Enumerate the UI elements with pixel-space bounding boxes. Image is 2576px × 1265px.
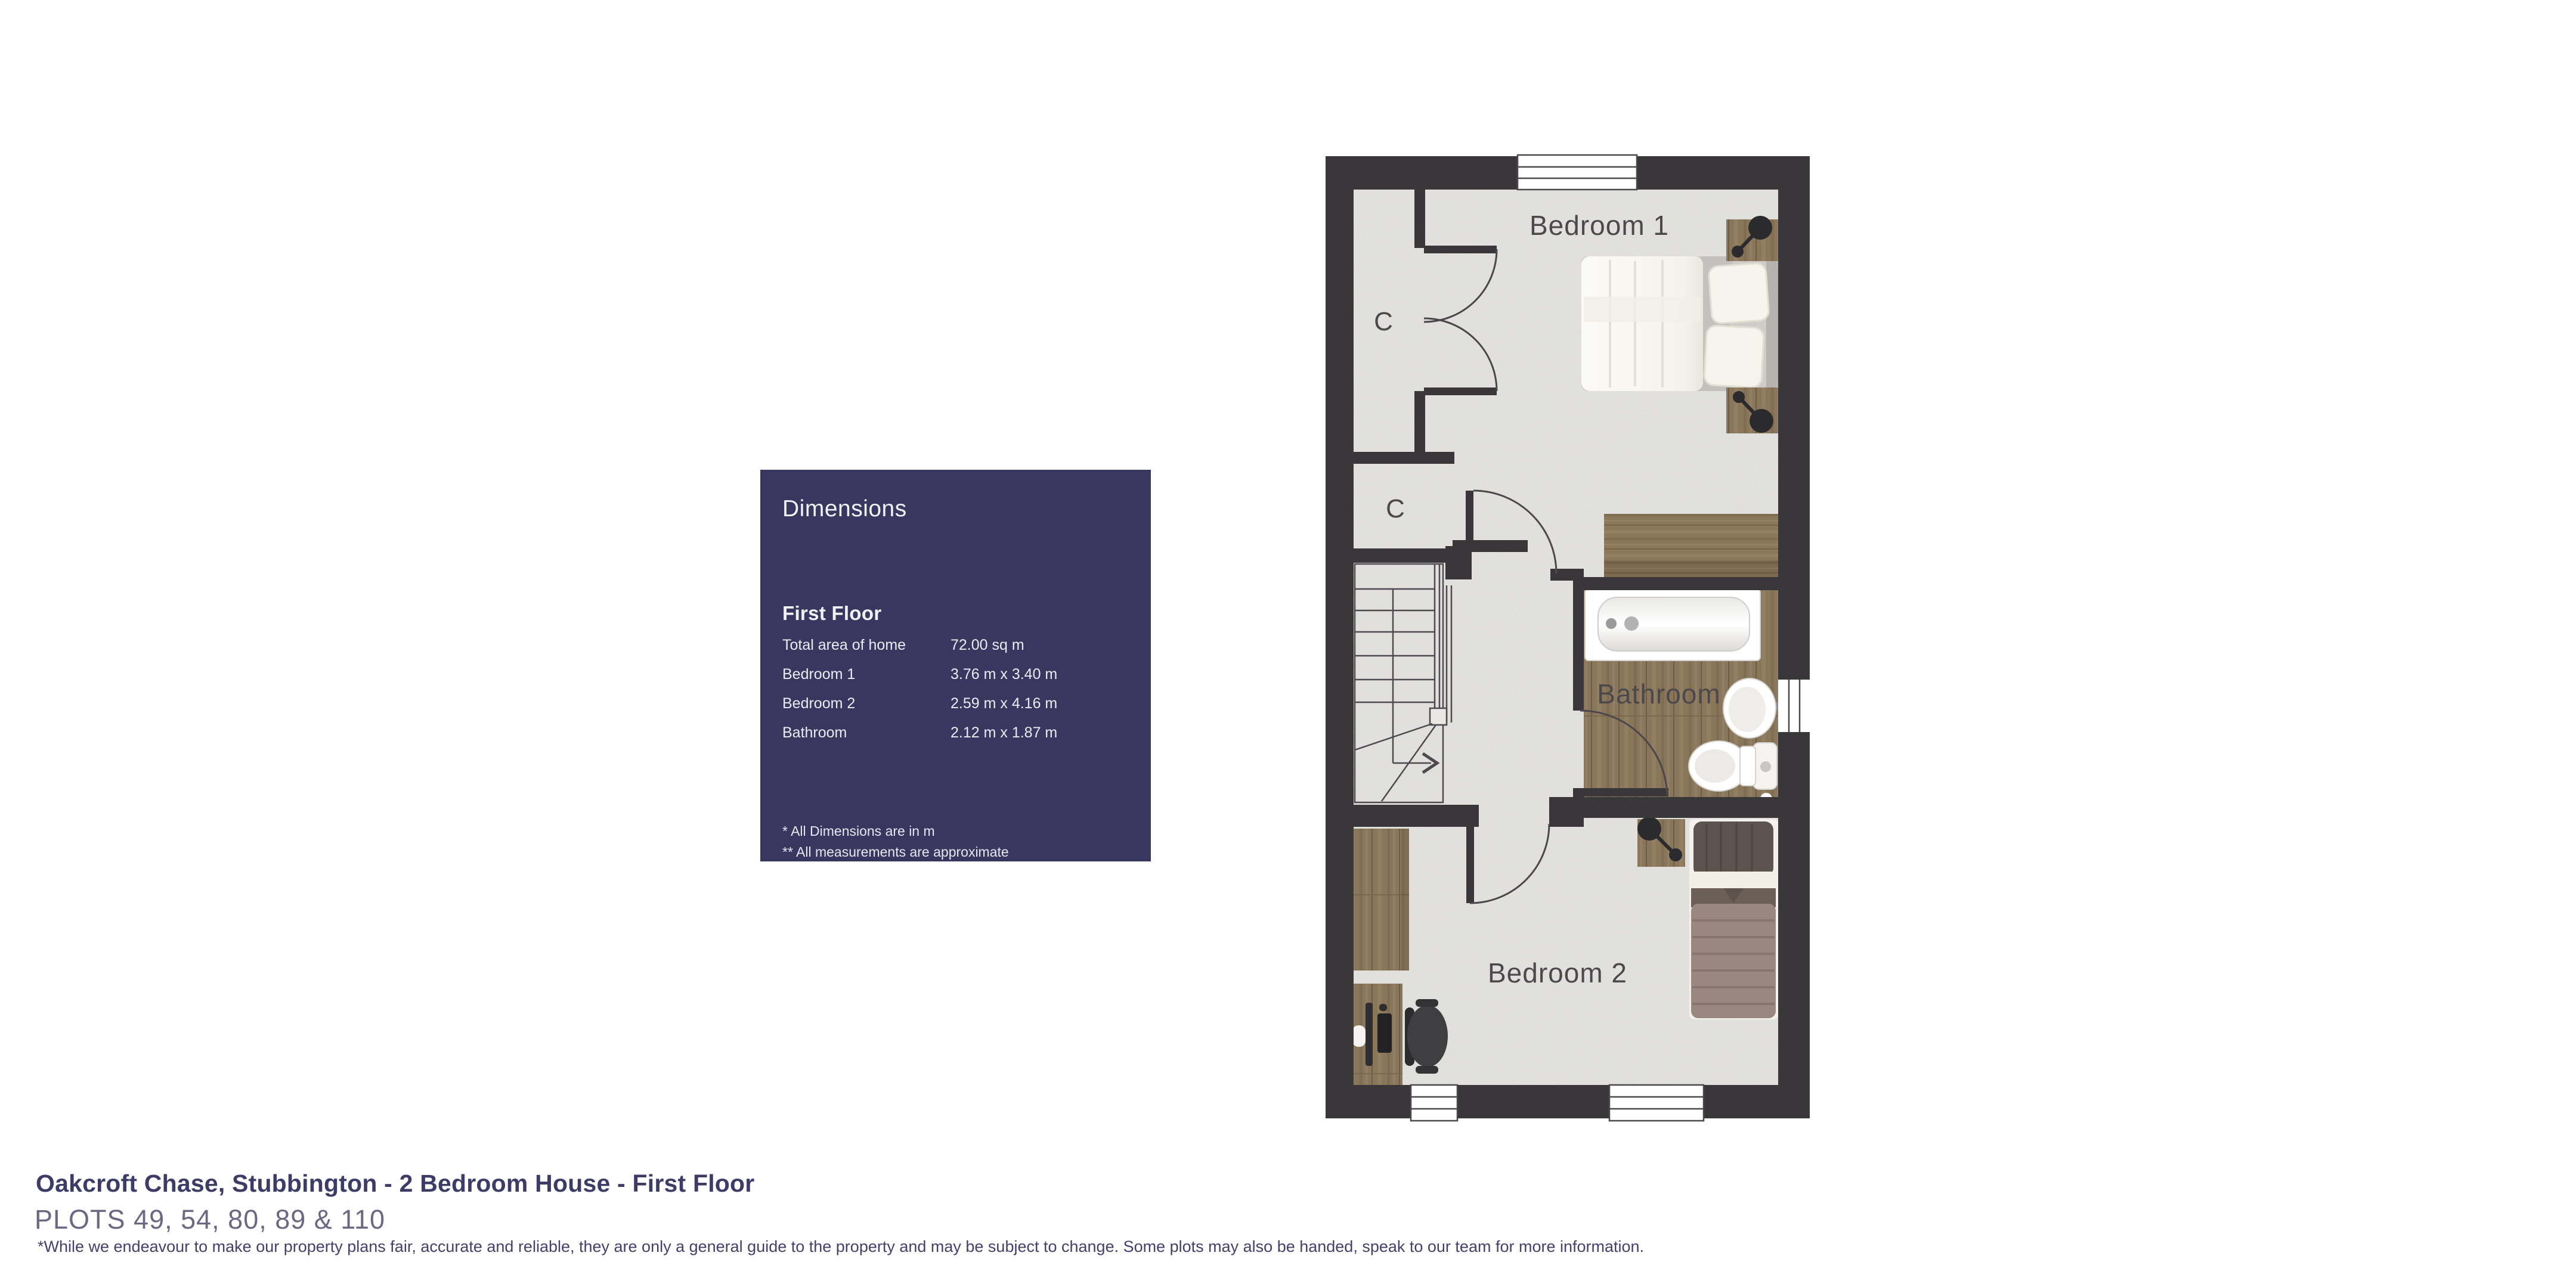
row-value: 2.59 m x 4.16 m [950, 695, 1057, 712]
floorplan-page: Dimensions First Floor Total area of hom… [0, 0, 2576, 1265]
row-value: 3.76 m x 3.40 m [950, 666, 1057, 683]
closet2-label: C [1386, 494, 1405, 523]
table-row: Bedroom 2 2.59 m x 4.16 m [782, 690, 1128, 720]
plots-subtitle: PLOTS 49, 54, 80, 89 & 110 [35, 1204, 385, 1235]
window-top [1518, 155, 1637, 190]
table-row: Bathroom 2.12 m x 1.87 m [782, 720, 1128, 749]
row-label: Bedroom 1 [782, 666, 855, 683]
mouse-icon [1379, 1004, 1387, 1011]
disclaimer-text: *While we endeavour to make our property… [38, 1238, 1644, 1256]
window-bottom-left [1411, 1085, 1457, 1121]
window-bottom-right [1609, 1085, 1704, 1121]
row-label: Total area of home [782, 637, 906, 654]
panel-title: Dimensions [782, 496, 907, 522]
nightstand-bedroom2 [1637, 817, 1685, 867]
single-bed [1689, 819, 1778, 1019]
table-row: Bedroom 1 3.76 m x 3.40 m [782, 661, 1128, 690]
panel-section-first-floor: First Floor [782, 602, 881, 625]
table-row: Total area of home 72.00 sq m [782, 632, 1128, 661]
keyboard-icon [1377, 1013, 1392, 1053]
row-label: Bathroom [782, 724, 847, 742]
nightstand-bottom [1726, 387, 1778, 433]
dimensions-table: Total area of home 72.00 sq m Bedroom 1 … [782, 632, 1128, 749]
double-bed [1581, 256, 1778, 391]
row-value: 72.00 sq m [950, 637, 1024, 654]
footnote-dimensions: * All Dimensions are in m [782, 823, 935, 839]
row-value: 2.12 m x 1.87 m [950, 724, 1057, 742]
window-bathroom [1778, 680, 1810, 732]
closet1-label: C [1374, 307, 1393, 336]
bathroom-label: Bathroom [1597, 678, 1720, 709]
floorplan-drawing: Bedroom 1 C C Bathroom Bedroom 2 [1326, 154, 1810, 1122]
footnote-measurements: ** All measurements are approximate [782, 844, 1009, 860]
page-title: Oakcroft Chase, Stubbington - 2 Bedroom … [36, 1170, 754, 1198]
dimensions-panel: Dimensions First Floor Total area of hom… [760, 470, 1151, 861]
nightstand-top [1726, 216, 1778, 261]
wardrobe-bedroom1 [1604, 514, 1778, 578]
monitor-icon [1366, 1003, 1373, 1066]
row-label: Bedroom 2 [782, 695, 855, 712]
toilet [1689, 741, 1777, 791]
wardrobe-bedroom2 [1345, 829, 1409, 971]
bathtub [1585, 589, 1760, 661]
bedroom2-label: Bedroom 2 [1488, 957, 1627, 988]
bedroom1-label: Bedroom 1 [1529, 210, 1669, 241]
